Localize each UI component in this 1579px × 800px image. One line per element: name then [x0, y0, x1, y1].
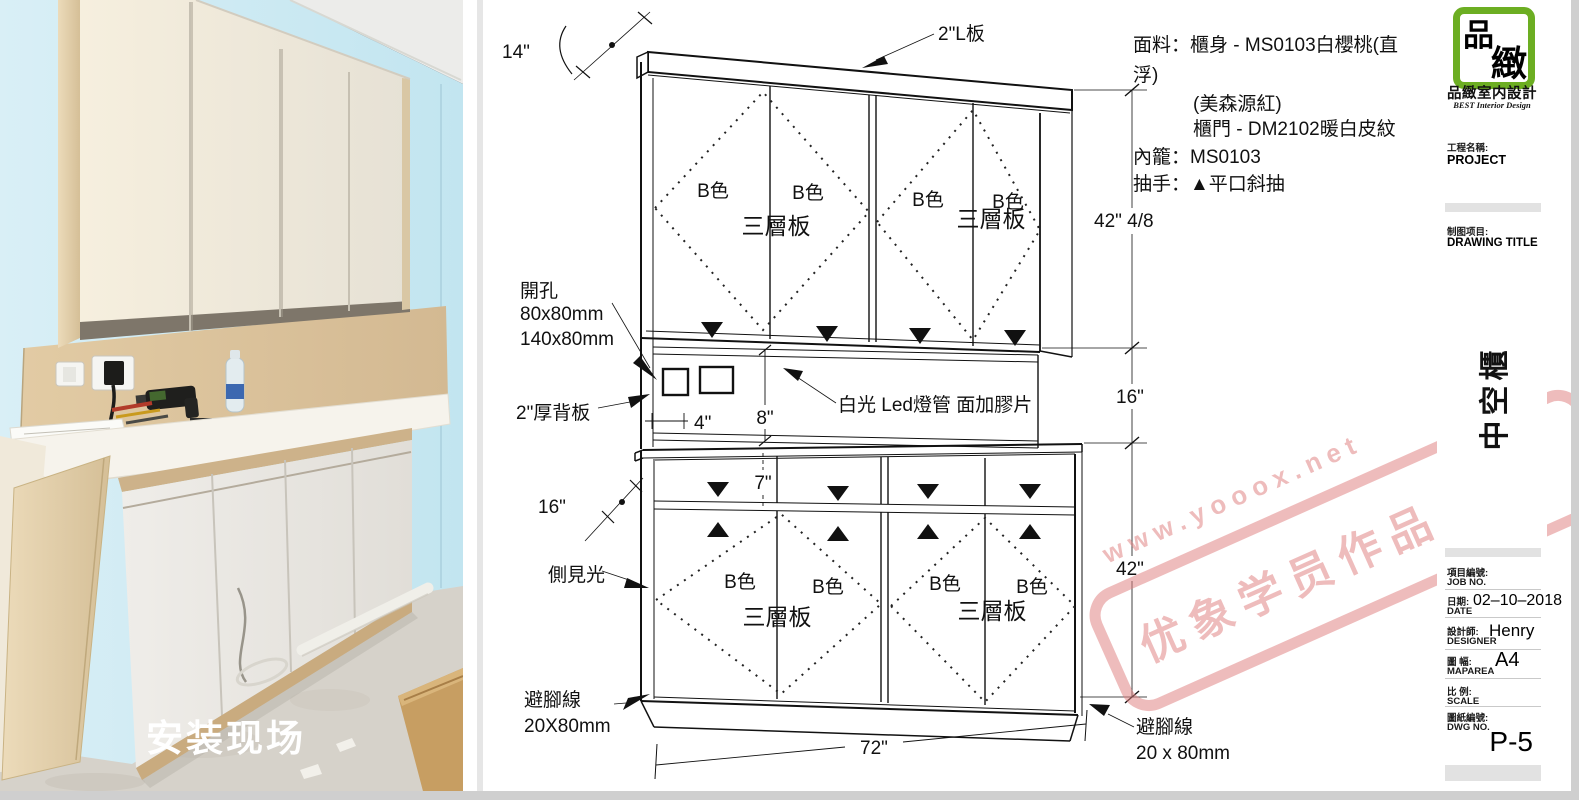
divider-bar	[1445, 203, 1541, 212]
divider-bar	[1445, 765, 1541, 781]
page-edge-bottom	[0, 791, 1579, 800]
panel-label: 三層板	[743, 604, 812, 630]
dim-total-width: 72"	[860, 738, 888, 759]
photo-caption: 安装现场	[146, 708, 306, 762]
field-rule	[1445, 678, 1541, 679]
water-bottle	[226, 350, 244, 412]
logo-character-2: 緻	[1491, 35, 1527, 87]
job-label-en: JOB NO.	[1447, 577, 1486, 588]
leader-arrowheads	[623, 56, 1110, 716]
dim-upper-height: 42" 4/8	[1094, 211, 1154, 232]
note-line-1: 面料：櫃身 - MS0103白櫻桃(直	[1133, 34, 1398, 56]
panel-label: 三層板	[958, 598, 1027, 624]
dim-hole-dy: 8"	[756, 408, 773, 429]
callout-side-light: 側見光	[548, 564, 605, 586]
drawing-sheet: 安装现场	[0, 0, 1579, 800]
callout-kick-left-title: 避腳線	[524, 689, 581, 711]
door-color-label: B色	[812, 576, 844, 598]
field-rule	[1445, 589, 1541, 590]
callout-holes-title: 開孔	[520, 280, 558, 302]
door-color-label: B色	[1016, 576, 1048, 598]
callout-holes-size-1: 80x80mm	[520, 304, 603, 325]
cutout-hole-80x80	[663, 369, 688, 395]
door-color-label: B色	[697, 180, 729, 202]
callout-kick-right-title: 避腳線	[1136, 716, 1193, 738]
divider-bar	[1445, 548, 1541, 557]
panel-label: 三層板	[957, 206, 1026, 232]
maparea-value: A4	[1495, 649, 1519, 672]
note-line-6: 抽手：▲平口斜抽	[1133, 173, 1285, 195]
maparea-label-en: MAPAREA	[1447, 666, 1494, 677]
title-block: 品 緻 品緻室内設計 BEST Interior Design 工程名稱: PR…	[1437, 0, 1547, 791]
project-value: PROJECT	[1447, 153, 1506, 167]
dim-mid-height: 16"	[1116, 387, 1144, 408]
dwg-label-en: DWG NO.	[1447, 722, 1490, 733]
callout-holes-size-2: 140x80mm	[520, 329, 614, 350]
dim-drawer-height: 7"	[754, 473, 771, 494]
note-line-4: 櫃門 - DM2102暖白皮紋	[1193, 118, 1396, 140]
callout-led: 白光 Led燈管 面加膠片	[838, 394, 1032, 416]
company-logo: 品 緻	[1453, 7, 1535, 89]
dwg-value: P-5	[1489, 726, 1533, 758]
page-edge-right	[1571, 0, 1579, 800]
cabinet-drawing: 2"L板 14" 面料：櫃身 - MS0103白櫻桃(直 浮) (美森源紅) 櫃…	[463, 0, 1438, 800]
company-tagline: BEST Interior Design	[1437, 100, 1547, 110]
dim-depth-top: 14"	[502, 42, 530, 63]
note-line-2: 浮)	[1133, 64, 1158, 86]
callout-kick-right-size: 20 x 80mm	[1136, 743, 1230, 764]
door-color-label: B色	[724, 571, 756, 593]
wall-switch	[56, 362, 84, 386]
callout-back-panel: 2"厚背板	[516, 402, 590, 424]
drawing-title-label-cn: 制图项目:	[1447, 224, 1488, 238]
logo-character-1: 品	[1463, 10, 1494, 55]
field-rule	[1445, 617, 1541, 618]
cutout-hole-140x80	[700, 367, 733, 393]
site-photo	[0, 0, 463, 795]
drawing-title-value: DRAWING TITLE	[1447, 237, 1538, 249]
label-top-board: 2"L板	[938, 23, 985, 45]
date-value: 02–10–2018	[1473, 592, 1562, 610]
dim-depth-lower: 16"	[538, 497, 566, 518]
door-color-label: B色	[929, 573, 961, 595]
designer-label-en: DESIGNER	[1447, 636, 1497, 647]
panel-label: 三層板	[742, 213, 811, 239]
label-backers	[751, 208, 1164, 760]
door-color-label: B色	[792, 182, 824, 204]
note-line-5: 內籠：MS0103	[1133, 146, 1261, 168]
dim-hole-dx: 4"	[694, 413, 711, 434]
date-label-en: DATE	[1447, 606, 1472, 617]
field-rule	[1445, 649, 1541, 650]
callout-kick-left-size: 20X80mm	[524, 716, 611, 737]
drawing-name-vertical: 中空櫃	[1470, 346, 1514, 451]
field-rule	[1445, 706, 1541, 707]
lower-cabinet	[635, 444, 1082, 741]
door-color-label: B色	[912, 189, 944, 211]
project-label-cn: 工程名稱:	[1447, 140, 1488, 154]
note-line-3: (美森源紅)	[1193, 93, 1282, 115]
